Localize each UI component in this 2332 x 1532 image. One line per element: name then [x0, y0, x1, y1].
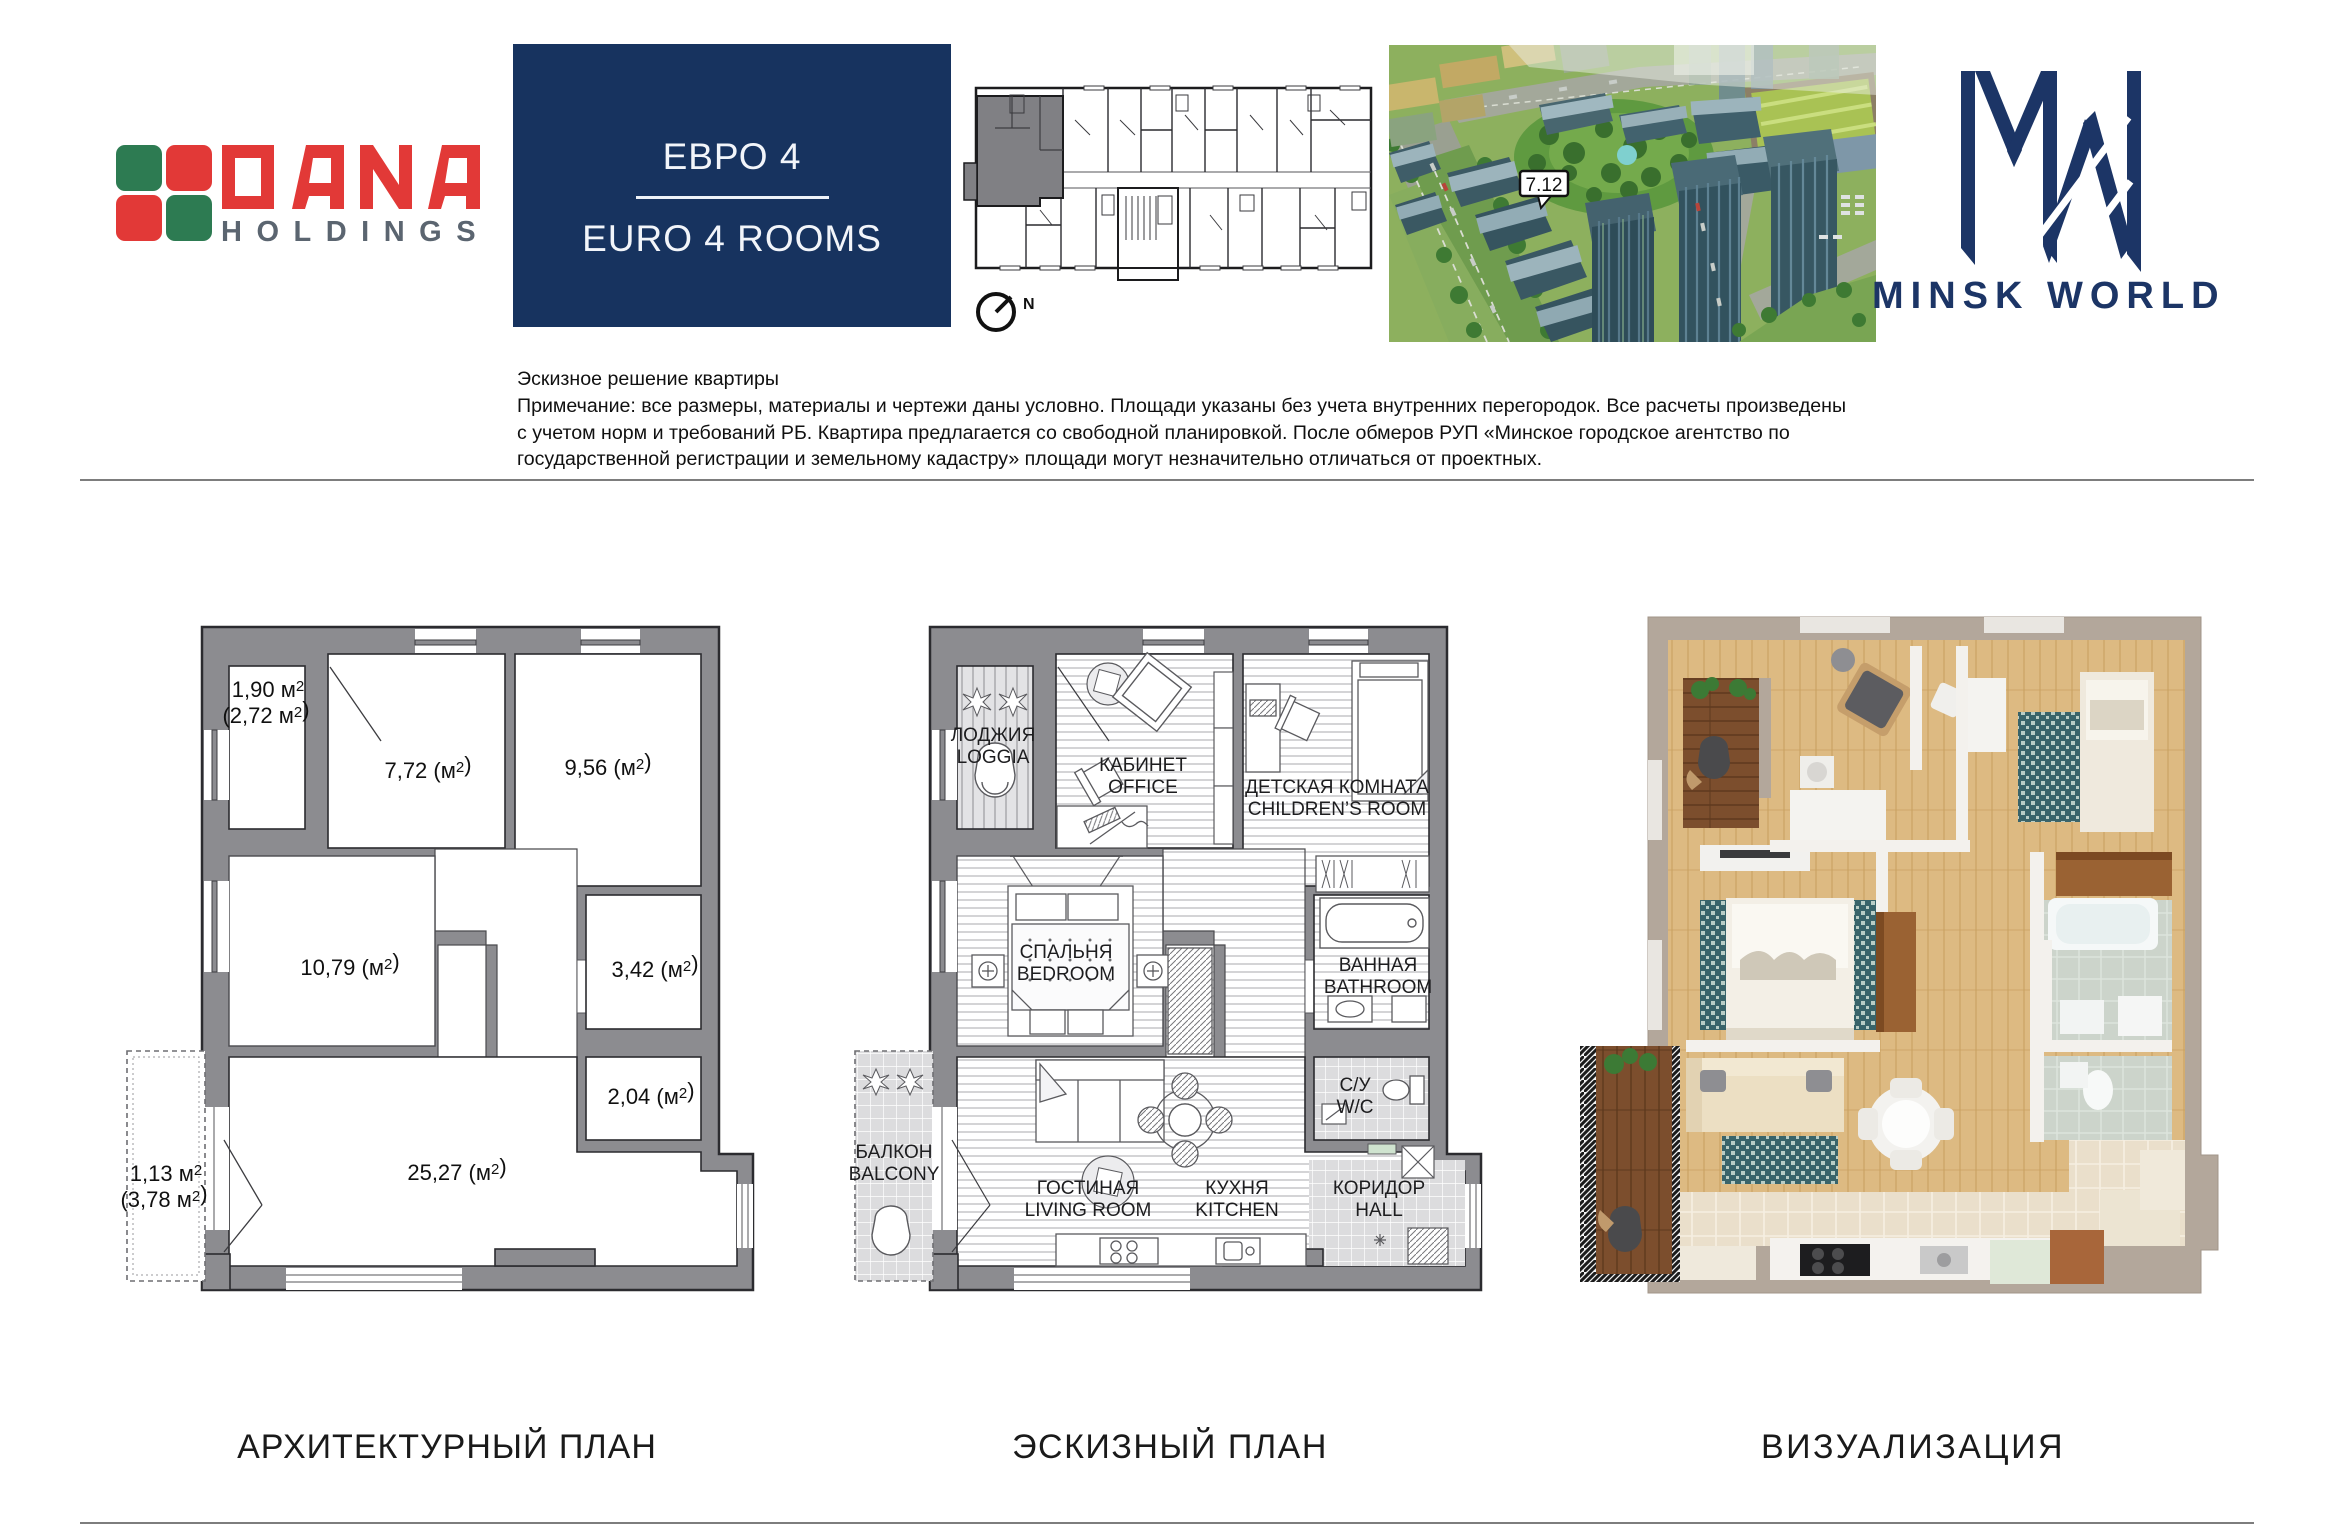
svg-text:W/C: W/C [1337, 1097, 1374, 1118]
svg-text:ВАННАЯ: ВАННАЯ [1339, 955, 1418, 976]
svg-text:ДЕТСКАЯ КОМНАТА: ДЕТСКАЯ КОМНАТА [1245, 777, 1429, 798]
svg-text:MINSK WORLD: MINSK WORLD [1872, 275, 2226, 316]
svg-text:LOGGIA: LOGGIA [957, 747, 1030, 768]
svg-text:BEDROOM: BEDROOM [1017, 964, 1115, 985]
svg-text:BATHROOM: BATHROOM [1324, 977, 1432, 998]
svg-text:OFFICE: OFFICE [1108, 777, 1178, 798]
svg-text:ЛОДЖИЯ: ЛОДЖИЯ [951, 725, 1036, 746]
svg-text:1,13 м2: 1,13 м2 [130, 1161, 202, 1186]
svg-text:N: N [1023, 296, 1035, 313]
svg-text:СПАЛЬНЯ: СПАЛЬНЯ [1020, 942, 1113, 963]
svg-text:КУХНЯ: КУХНЯ [1205, 1178, 1268, 1199]
svg-text:КОРИДОР: КОРИДОР [1333, 1178, 1425, 1199]
svg-text:KITCHEN: KITCHEN [1195, 1200, 1278, 1221]
svg-text:CHILDREN’S ROOM: CHILDREN’S ROOM [1248, 799, 1426, 820]
svg-text:КАБИНЕТ: КАБИНЕТ [1099, 755, 1187, 776]
svg-text:7.12: 7.12 [1526, 175, 1563, 196]
svg-text:BALCONY: BALCONY [849, 1164, 940, 1185]
svg-text:HOLDINGS: HOLDINGS [221, 216, 490, 247]
svg-text:БАЛКОН: БАЛКОН [856, 1142, 933, 1163]
svg-text:1,90 м2: 1,90 м2 [232, 677, 304, 702]
svg-text:LIVING ROOM: LIVING ROOM [1025, 1200, 1152, 1221]
svg-text:ГОСТИНАЯ: ГОСТИНАЯ [1037, 1178, 1139, 1199]
svg-text:HALL: HALL [1355, 1200, 1403, 1221]
svg-text:С/У: С/У [1339, 1075, 1371, 1096]
